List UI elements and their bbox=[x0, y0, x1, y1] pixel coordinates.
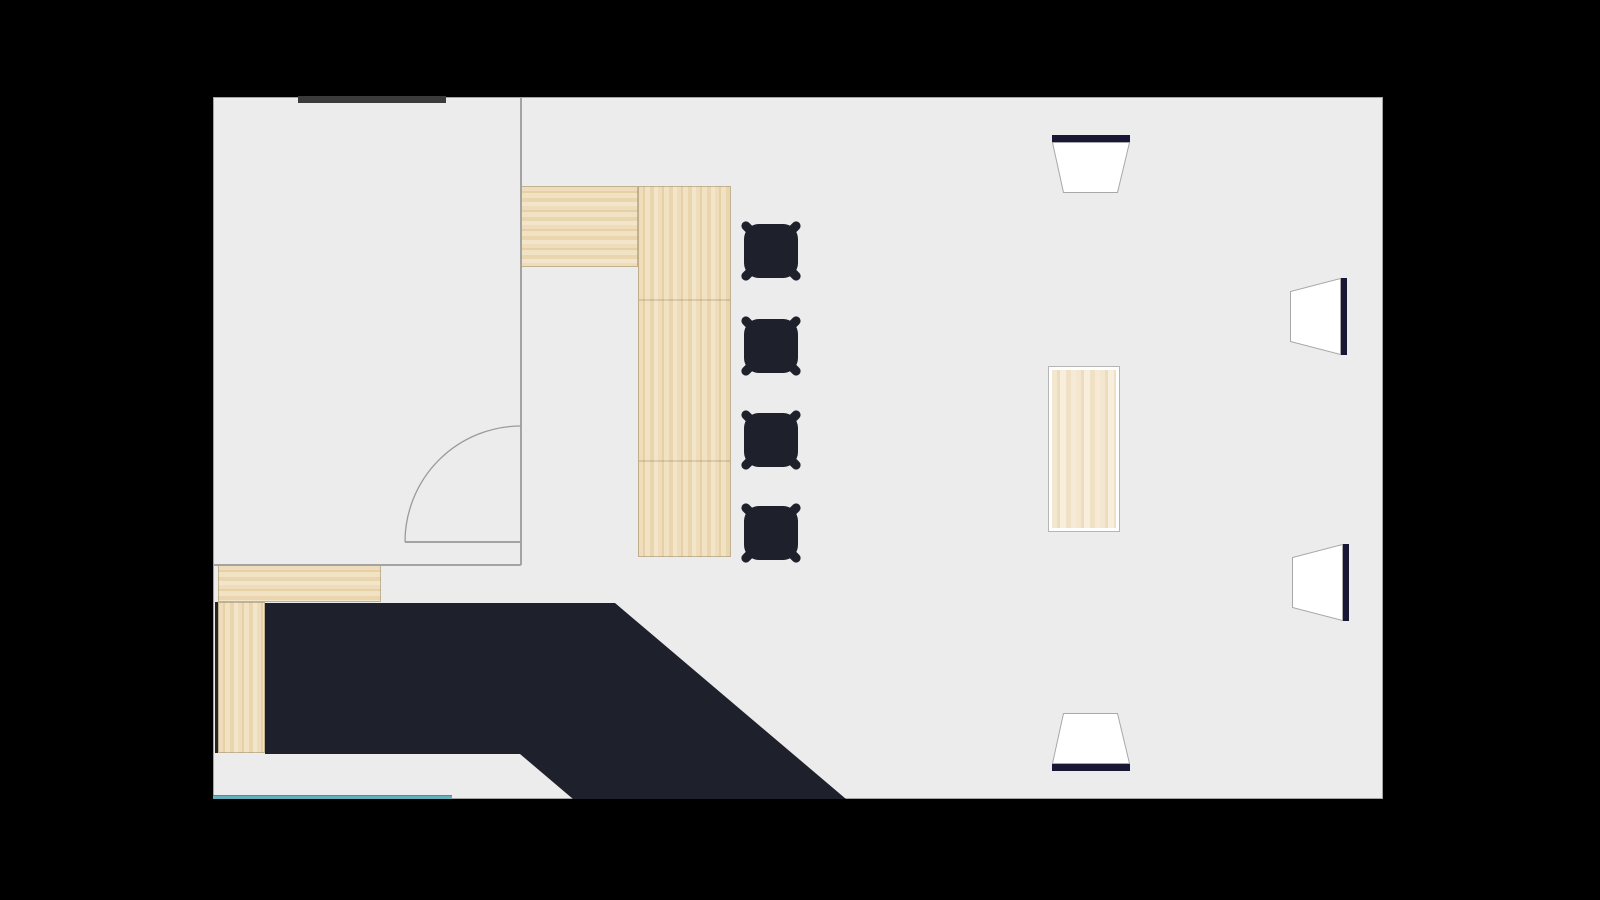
stool-seat bbox=[744, 224, 798, 278]
speaker[interactable] bbox=[1052, 135, 1130, 193]
counter-seam bbox=[639, 299, 730, 301]
stool-seat bbox=[744, 413, 798, 467]
speaker-icon bbox=[1052, 135, 1130, 193]
bar-stool[interactable] bbox=[734, 496, 808, 570]
service-counter-vertical[interactable] bbox=[218, 602, 265, 753]
service-wall-strip bbox=[215, 602, 218, 753]
speaker-icon bbox=[1292, 544, 1349, 621]
speaker[interactable] bbox=[1292, 544, 1349, 621]
bar-stool[interactable] bbox=[734, 309, 808, 383]
table-surface bbox=[1052, 370, 1116, 528]
lower-room-wall bbox=[213, 564, 521, 566]
bar-stool[interactable] bbox=[734, 403, 808, 477]
speaker[interactable] bbox=[1052, 713, 1130, 771]
stage-shape bbox=[265, 603, 846, 799]
service-counter-horizontal[interactable] bbox=[218, 565, 381, 602]
door-arc-path bbox=[405, 426, 521, 542]
speaker-icon bbox=[1290, 278, 1347, 355]
window-sill bbox=[213, 795, 452, 799]
door-swing-arc[interactable] bbox=[405, 426, 521, 542]
stool-seat bbox=[744, 506, 798, 560]
stage-area[interactable] bbox=[265, 603, 846, 799]
speaker[interactable] bbox=[1290, 278, 1347, 355]
bar-counter-horizontal[interactable] bbox=[520, 186, 638, 267]
wood-table[interactable] bbox=[1048, 366, 1120, 532]
counter-seam bbox=[639, 460, 730, 462]
stool-seat bbox=[744, 319, 798, 373]
canvas-background bbox=[0, 0, 1600, 900]
speaker-icon bbox=[1052, 713, 1130, 771]
bar-stool[interactable] bbox=[734, 214, 808, 288]
bar-counter-vertical[interactable] bbox=[638, 186, 731, 557]
top-wall-segment bbox=[298, 96, 446, 103]
